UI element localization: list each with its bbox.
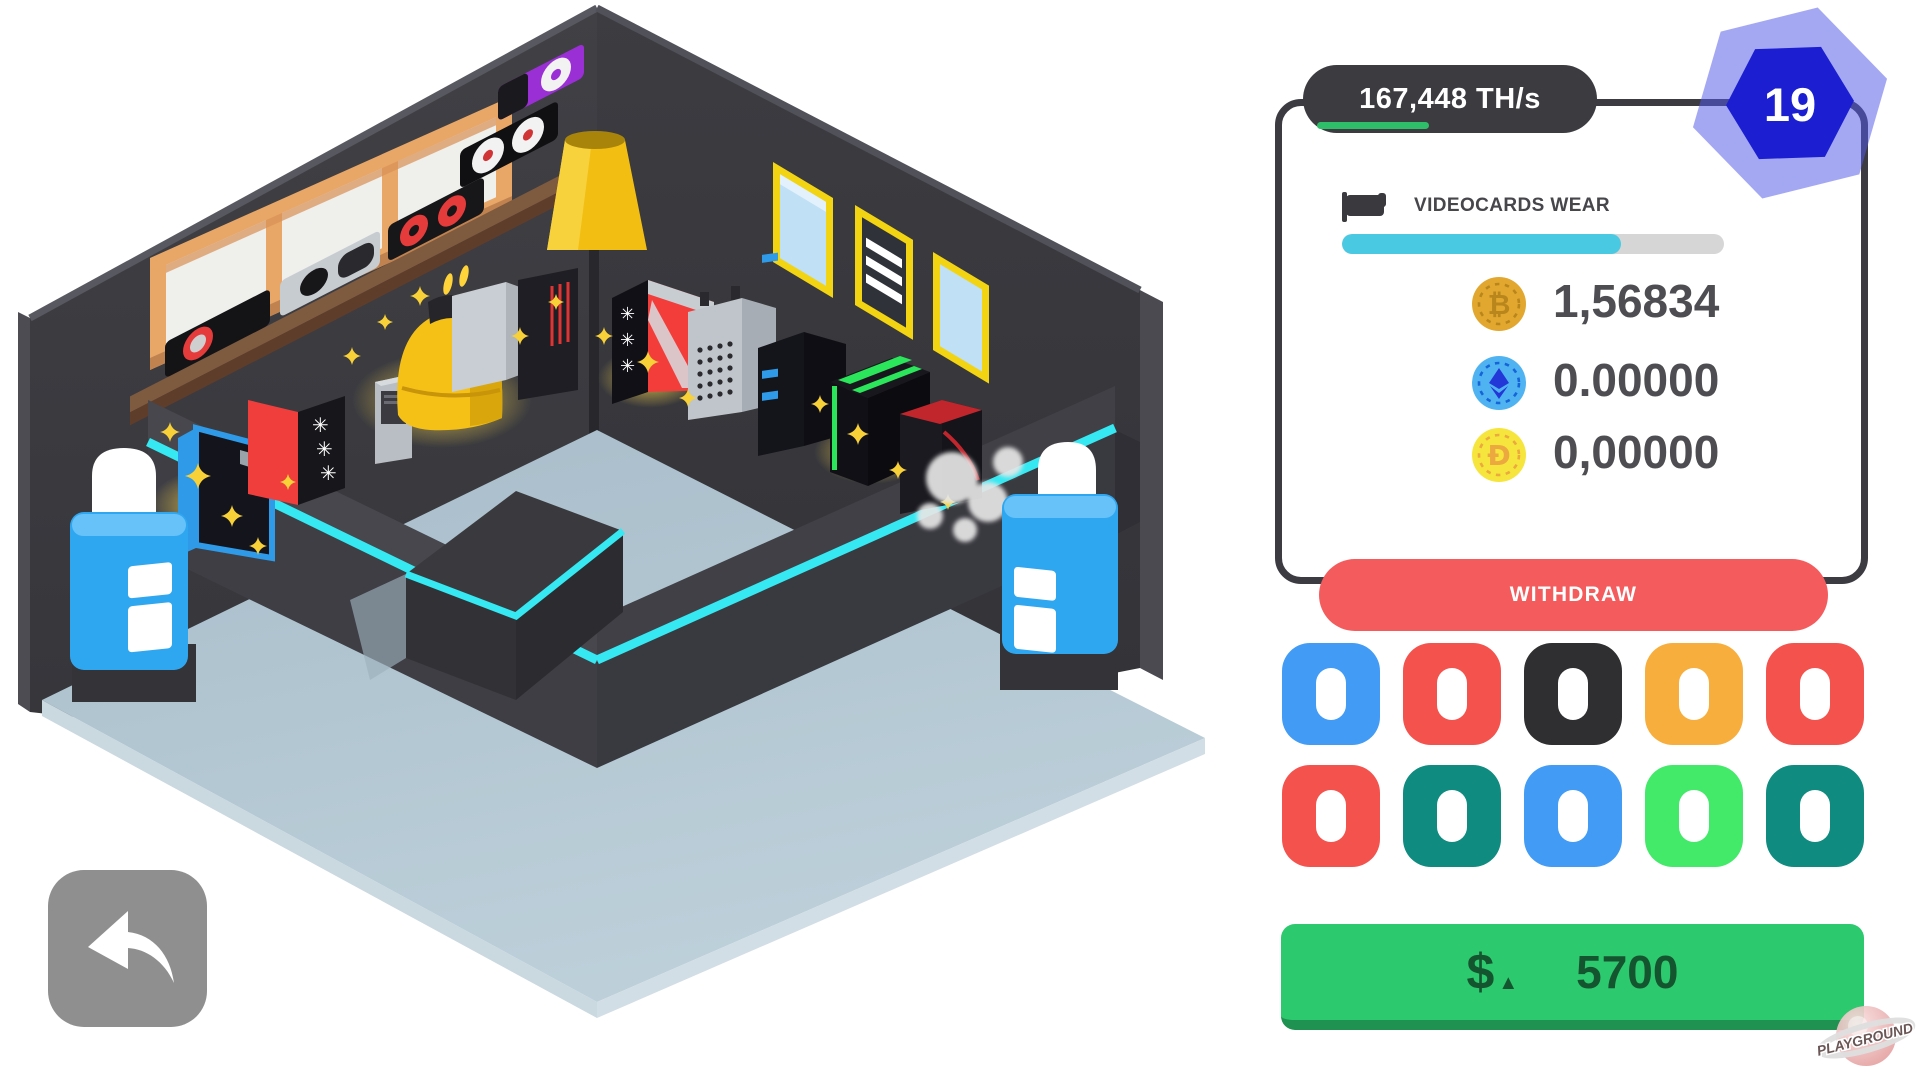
case-color-swatch-row1-5[interactable] xyxy=(1766,643,1864,745)
level-badge: 19 xyxy=(1676,0,1904,212)
swatch-row1 xyxy=(1282,643,1864,745)
swatch-hole xyxy=(1316,790,1346,842)
swatch-row2 xyxy=(1282,765,1864,867)
swatch-hole xyxy=(1800,668,1830,720)
dollar-icon: $ xyxy=(1467,943,1495,1001)
bitcoin-coin-icon: ₿ xyxy=(1471,276,1527,332)
back-button[interactable] xyxy=(48,870,207,1027)
swatch-hole xyxy=(1679,790,1709,842)
ethereum-balance: 0.00000 xyxy=(1553,353,1719,407)
wear-progress xyxy=(1342,234,1724,254)
withdraw-button[interactable]: WITHDRAW xyxy=(1319,559,1828,631)
bitcoin-balance: 1,56834 xyxy=(1553,274,1719,328)
price-up-icon: ▲ xyxy=(1498,972,1518,995)
case-color-swatch-row1-3[interactable] xyxy=(1524,643,1622,745)
ethereum-coin-icon xyxy=(1471,355,1527,411)
swatch-hole xyxy=(1679,668,1709,720)
dogecoin-coin-icon: Ð xyxy=(1471,427,1527,483)
case-color-swatch-row2-1[interactable] xyxy=(1282,765,1380,867)
balance-bitcoin: ₿ 1,56834 xyxy=(1471,276,1719,332)
balance-ethereum: 0.00000 xyxy=(1471,355,1719,411)
case-color-picker xyxy=(1282,643,1864,887)
buy-amount: 5700 xyxy=(1576,945,1678,999)
hashrate-progress xyxy=(1317,122,1583,129)
case-color-swatch-row1-4[interactable] xyxy=(1645,643,1743,745)
swatch-hole xyxy=(1316,668,1346,720)
case-color-swatch-row2-5[interactable] xyxy=(1766,765,1864,867)
case-color-swatch-row1-2[interactable] xyxy=(1403,643,1501,745)
svg-text:✳: ✳ xyxy=(620,330,635,350)
swatch-hole xyxy=(1800,790,1830,842)
swatch-hole xyxy=(1558,668,1588,720)
svg-text:Ð: Ð xyxy=(1487,439,1510,472)
svg-text:✳: ✳ xyxy=(620,356,635,376)
svg-text:✳: ✳ xyxy=(620,304,635,324)
svg-text:✳: ✳ xyxy=(316,439,333,461)
buy-button[interactable]: $ ▲ 5700 xyxy=(1281,924,1864,1030)
dogecoin-balance: 0,00000 xyxy=(1553,425,1719,479)
game-screen: ✳ ✳ ✳ xyxy=(0,0,1920,1080)
swatch-hole xyxy=(1437,790,1467,842)
rig-red-case[interactable]: ✳ ✳ ✳ xyxy=(248,396,345,505)
level-value: 19 xyxy=(1676,0,1904,212)
case-color-swatch-row2-4[interactable] xyxy=(1645,765,1743,867)
case-color-swatch-row1-1[interactable] xyxy=(1282,643,1380,745)
back-arrow-icon xyxy=(78,901,178,996)
rig-black-red-tower[interactable] xyxy=(518,268,578,400)
videocard-icon xyxy=(1340,188,1388,224)
swatch-hole xyxy=(1558,790,1588,842)
case-color-swatch-row2-2[interactable] xyxy=(1403,765,1501,867)
case-color-swatch-row2-3[interactable] xyxy=(1524,765,1622,867)
svg-text:✳: ✳ xyxy=(312,415,329,437)
withdraw-label: WITHDRAW xyxy=(1510,583,1637,607)
svg-text:✳: ✳ xyxy=(320,463,337,485)
svg-text:₿: ₿ xyxy=(1488,288,1511,321)
hashrate-pill: 167,448 TH/s xyxy=(1303,65,1597,133)
balance-dogecoin: Ð 0,00000 xyxy=(1471,427,1719,483)
hashrate-value: 167,448 TH/s xyxy=(1359,83,1541,116)
swatch-hole xyxy=(1437,668,1467,720)
wear-label: VIDEOCARDS WEAR xyxy=(1414,195,1610,217)
